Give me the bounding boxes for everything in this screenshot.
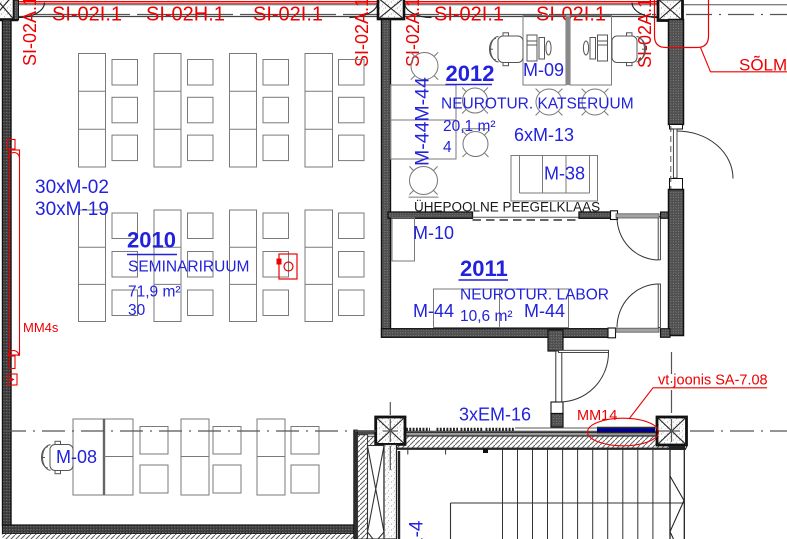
svg-text:M-09: M-09 [523, 60, 564, 80]
svg-text:SI-02A.1: SI-02A.1 [635, 0, 655, 68]
svg-text:30xM-02: 30xM-02 [35, 177, 109, 198]
svg-text:2012: 2012 [446, 61, 495, 86]
svg-text:SI-02A.1: SI-02A.1 [20, 0, 40, 66]
svg-text:SI-02A.1: SI-02A.1 [352, 0, 372, 67]
svg-text:71,9 m²: 71,9 m² [128, 284, 181, 301]
svg-text:SÕLM 2: SÕLM 2 [739, 56, 787, 75]
svg-text:SEMINARIRUUM: SEMINARIRUUM [128, 259, 249, 276]
svg-text:20,1 m²: 20,1 m² [443, 118, 496, 135]
svg-text:MM14: MM14 [577, 408, 617, 424]
svg-text:SI-02A.1: SI-02A.1 [403, 0, 423, 67]
svg-text:MM4s: MM4s [23, 320, 59, 335]
svg-text:M-44: M-44 [413, 301, 454, 321]
svg-text:SI-02I.1: SI-02I.1 [434, 4, 504, 26]
svg-text:M-44M-44: M-44M-44 [412, 77, 434, 166]
svg-text:2011: 2011 [460, 256, 508, 281]
svg-text:ÜHEPOOLNE PEEGELKLAAS: ÜHEPOOLNE PEEGELKLAAS [414, 200, 600, 215]
svg-text:M-10: M-10 [413, 223, 454, 243]
svg-text:SI-02I.1: SI-02I.1 [52, 4, 122, 26]
svg-text:NEUROTUR. KATSERUUM: NEUROTUR. KATSERUUM [441, 96, 634, 113]
svg-text:SI-02H.1: SI-02H.1 [146, 4, 225, 26]
svg-text:SI-02I.1: SI-02I.1 [536, 4, 606, 26]
svg-text:30xM-19: 30xM-19 [35, 199, 109, 220]
svg-text:vt joonis SA-7.08: vt joonis SA-7.08 [658, 373, 768, 389]
svg-text:10,6 m²: 10,6 m² [460, 308, 513, 325]
svg-text:1-4: 1-4 [407, 520, 428, 539]
svg-text:4: 4 [443, 139, 452, 156]
svg-text:2010: 2010 [127, 228, 176, 253]
svg-text:M-44: M-44 [524, 301, 565, 321]
svg-text:M-38: M-38 [544, 164, 585, 184]
svg-text:3xEM-16: 3xEM-16 [459, 405, 531, 425]
svg-text:M-08: M-08 [56, 447, 97, 467]
svg-text:SI-02I.1: SI-02I.1 [253, 4, 323, 26]
svg-text:30: 30 [128, 302, 146, 319]
svg-text:6xM-13: 6xM-13 [514, 125, 574, 145]
